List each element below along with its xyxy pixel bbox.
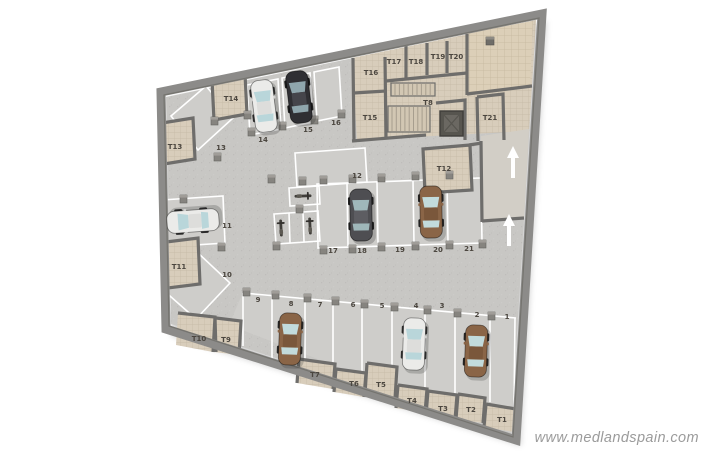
parking-space-label-12: 12 — [352, 172, 362, 180]
storage-room-label-t9: T9 — [221, 336, 231, 344]
storage-room-label-t11: T11 — [172, 263, 187, 271]
parking-space-label-3: 3 — [440, 302, 445, 310]
storage-room-label-t13: T13 — [168, 143, 183, 151]
page-background: 1 2 3 4 5 6 7 8 9 10 11 12 13 14 15 16 1… — [0, 0, 705, 454]
parking-space-label-21: 21 — [464, 245, 474, 253]
parking-space-label-10: 10 — [222, 271, 232, 279]
parking-space-label-2: 2 — [475, 311, 480, 319]
storage-room-label-t14: T14 — [224, 95, 239, 103]
parking-space-label-4: 4 — [414, 302, 419, 310]
storage-room-label-t3: T3 — [438, 405, 448, 413]
ramp-floor — [481, 129, 529, 221]
parking-space-label-18: 18 — [357, 247, 367, 255]
car-space-2 — [462, 325, 491, 381]
storage-room-label-t7: T7 — [310, 371, 320, 379]
storage-room-label-t18: T18 — [409, 58, 424, 66]
parking-space-label-13: 13 — [216, 144, 226, 152]
storage-room-label-t17: T17 — [387, 58, 402, 66]
staircase — [388, 83, 435, 132]
car-space-18 — [348, 189, 376, 245]
car-space-8 — [276, 313, 305, 369]
car-space-4 — [400, 318, 429, 374]
parking-space-label-14: 14 — [258, 136, 268, 144]
floor-plan: 1 2 3 4 5 6 7 8 9 10 11 12 13 14 15 16 1… — [0, 0, 705, 454]
parking-space-label-6: 6 — [351, 301, 356, 309]
storage-room-label-t12: T12 — [437, 165, 452, 173]
storage-room-label-t5: T5 — [376, 381, 386, 389]
storage-room-label-t2: T2 — [466, 406, 476, 414]
storage-room-label-t6: T6 — [349, 380, 359, 388]
storage-room-label-t8: T8 — [423, 99, 433, 107]
storage-room-label-t15: T15 — [363, 114, 378, 122]
parking-space-label-9: 9 — [256, 296, 261, 304]
parking-space-label-11: 11 — [222, 222, 232, 230]
parking-space-label-7: 7 — [318, 301, 323, 309]
storage-room-label-t21: T21 — [483, 114, 498, 122]
storage-room-label-t16: T16 — [364, 69, 379, 77]
terrace-object — [486, 37, 494, 45]
storage-room-label-t19: T19 — [431, 53, 446, 61]
watermark: www.medlandspain.com — [535, 430, 699, 446]
storage-room-label-t20: T20 — [449, 53, 464, 61]
elevator — [440, 111, 463, 136]
car-space-20 — [418, 186, 446, 242]
parking-space-label-5: 5 — [380, 302, 385, 310]
storage-room-label-t1: T1 — [497, 416, 507, 424]
parking-space-label-20: 20 — [433, 246, 443, 254]
parking-space-label-17: 17 — [328, 247, 338, 255]
parking-space-label-1: 1 — [505, 313, 510, 321]
storage-room-label-t4: T4 — [407, 397, 417, 405]
parking-space-label-16: 16 — [331, 119, 341, 127]
parking-space-label-19: 19 — [395, 246, 405, 254]
storage-room-label-t10: T10 — [192, 335, 207, 343]
parking-space-label-8: 8 — [289, 300, 294, 308]
parking-space-label-15: 15 — [303, 126, 313, 134]
